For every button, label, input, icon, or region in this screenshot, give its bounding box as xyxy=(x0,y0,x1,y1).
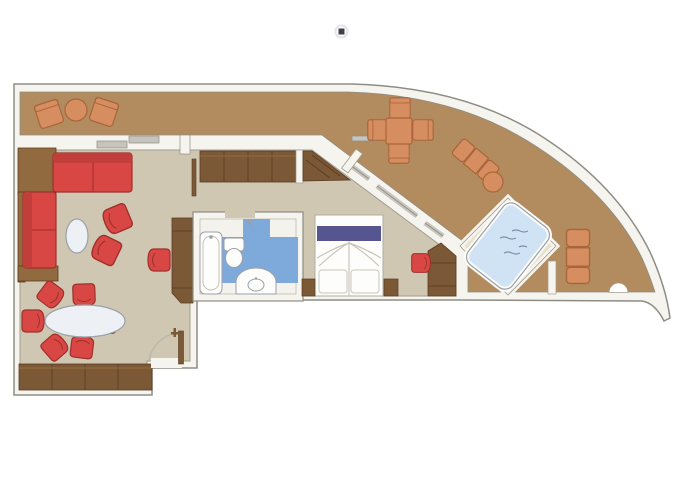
interior-door-leaf xyxy=(192,159,196,196)
floor-plan-canvas xyxy=(0,0,680,491)
bathroom xyxy=(193,209,303,301)
desk-chair xyxy=(412,254,431,273)
shower-head-icon xyxy=(247,220,251,224)
pillow xyxy=(351,270,379,293)
armchair xyxy=(148,249,170,271)
corner-table xyxy=(18,148,56,194)
marker-dot xyxy=(336,26,348,38)
pillow xyxy=(319,270,347,293)
dining-chair xyxy=(22,310,44,332)
deck-chair xyxy=(413,120,433,140)
deck-chair xyxy=(368,120,388,140)
deck-table-round xyxy=(65,99,87,121)
door-jamb xyxy=(180,135,190,154)
toilet xyxy=(224,238,244,268)
bathtub xyxy=(200,232,222,294)
side-table-round xyxy=(483,172,503,192)
wall-segment xyxy=(296,150,303,183)
floor-plan-drawing xyxy=(0,0,680,491)
coffee-table xyxy=(66,219,88,253)
door-leaf xyxy=(179,331,184,364)
dining-chair xyxy=(73,284,96,307)
door-handle xyxy=(174,328,177,337)
window xyxy=(97,141,127,148)
nightstand xyxy=(384,279,398,296)
deck-chair xyxy=(390,98,410,118)
sideboard xyxy=(19,364,152,390)
dining-chair xyxy=(70,335,95,360)
sink-vanity xyxy=(236,268,276,294)
deck-chair xyxy=(389,143,409,163)
nightstand xyxy=(302,279,315,296)
bed-runner xyxy=(317,226,381,241)
double-bed xyxy=(315,215,383,296)
door-opening xyxy=(151,358,182,368)
sun-lounger xyxy=(567,229,590,283)
bathroom-door-opening xyxy=(225,209,255,218)
balcony-door xyxy=(129,136,159,143)
deck-table xyxy=(386,118,412,144)
deck-wall xyxy=(548,261,556,294)
dining-table xyxy=(45,305,125,337)
